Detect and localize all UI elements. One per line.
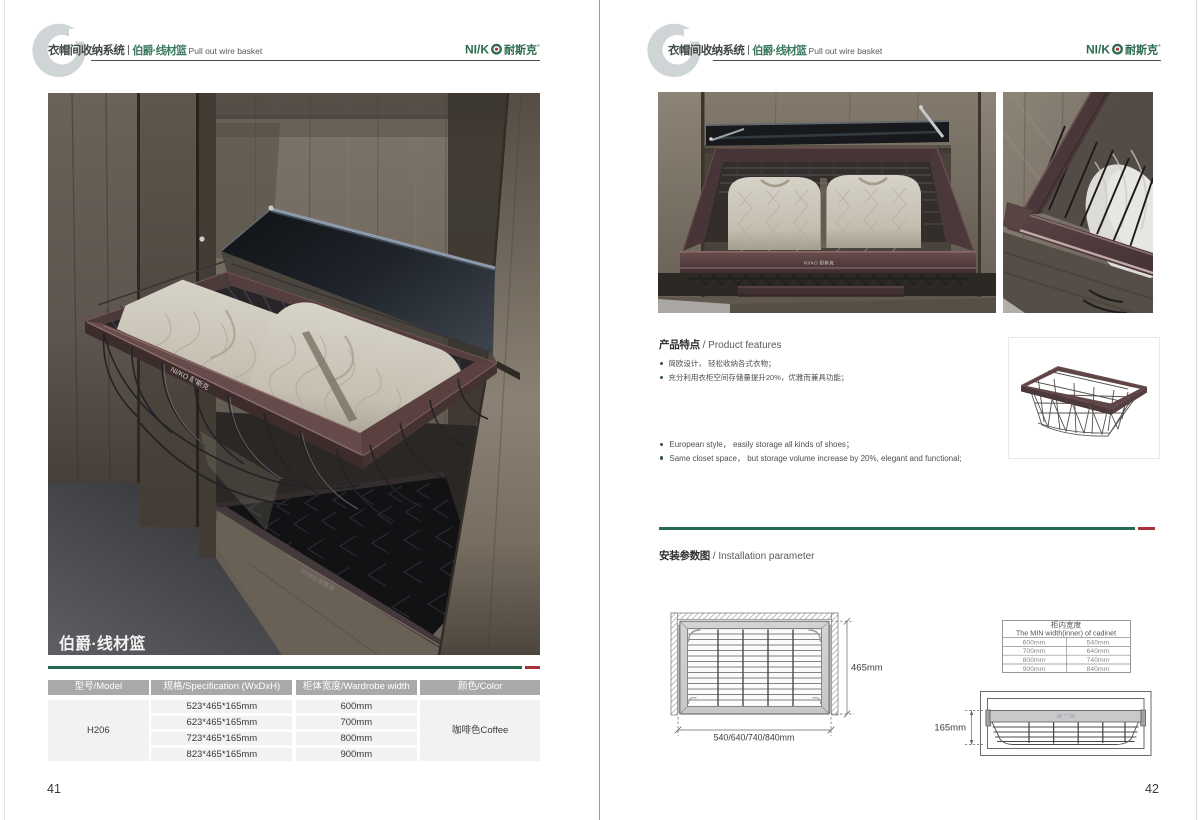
svg-text:®: ® bbox=[1158, 43, 1161, 48]
svg-text:NI/KO: NI/KO bbox=[1062, 715, 1071, 719]
svg-text:640mm: 640mm bbox=[1087, 648, 1110, 655]
svg-text:540/640/740/840mm: 540/640/740/840mm bbox=[714, 733, 795, 743]
svg-text:900mm: 900mm bbox=[1023, 666, 1046, 673]
svg-text:465mm: 465mm bbox=[851, 663, 883, 674]
svg-text:The MIN width(inner) of cadine: The MIN width(inner) of cadinet bbox=[1016, 629, 1116, 638]
svg-text:800mm: 800mm bbox=[1023, 657, 1046, 664]
svg-text:740mm: 740mm bbox=[1087, 657, 1110, 664]
svg-text:600mm: 600mm bbox=[1023, 639, 1046, 646]
svg-text:165mm: 165mm bbox=[935, 722, 966, 733]
svg-text:®: ® bbox=[537, 43, 540, 48]
svg-text:耐斯克: 耐斯克 bbox=[1125, 43, 1158, 57]
svg-text:耐斯克: 耐斯克 bbox=[504, 43, 537, 57]
svg-text:NI/K: NI/K bbox=[1086, 43, 1110, 57]
svg-text:NI/KO 耐斯克: NI/KO 耐斯克 bbox=[804, 260, 834, 267]
svg-text:700mm: 700mm bbox=[1023, 648, 1046, 655]
svg-text:NI/K: NI/K bbox=[465, 43, 489, 57]
svg-text:540mm: 540mm bbox=[1087, 639, 1110, 646]
svg-text:840mm: 840mm bbox=[1087, 666, 1110, 673]
